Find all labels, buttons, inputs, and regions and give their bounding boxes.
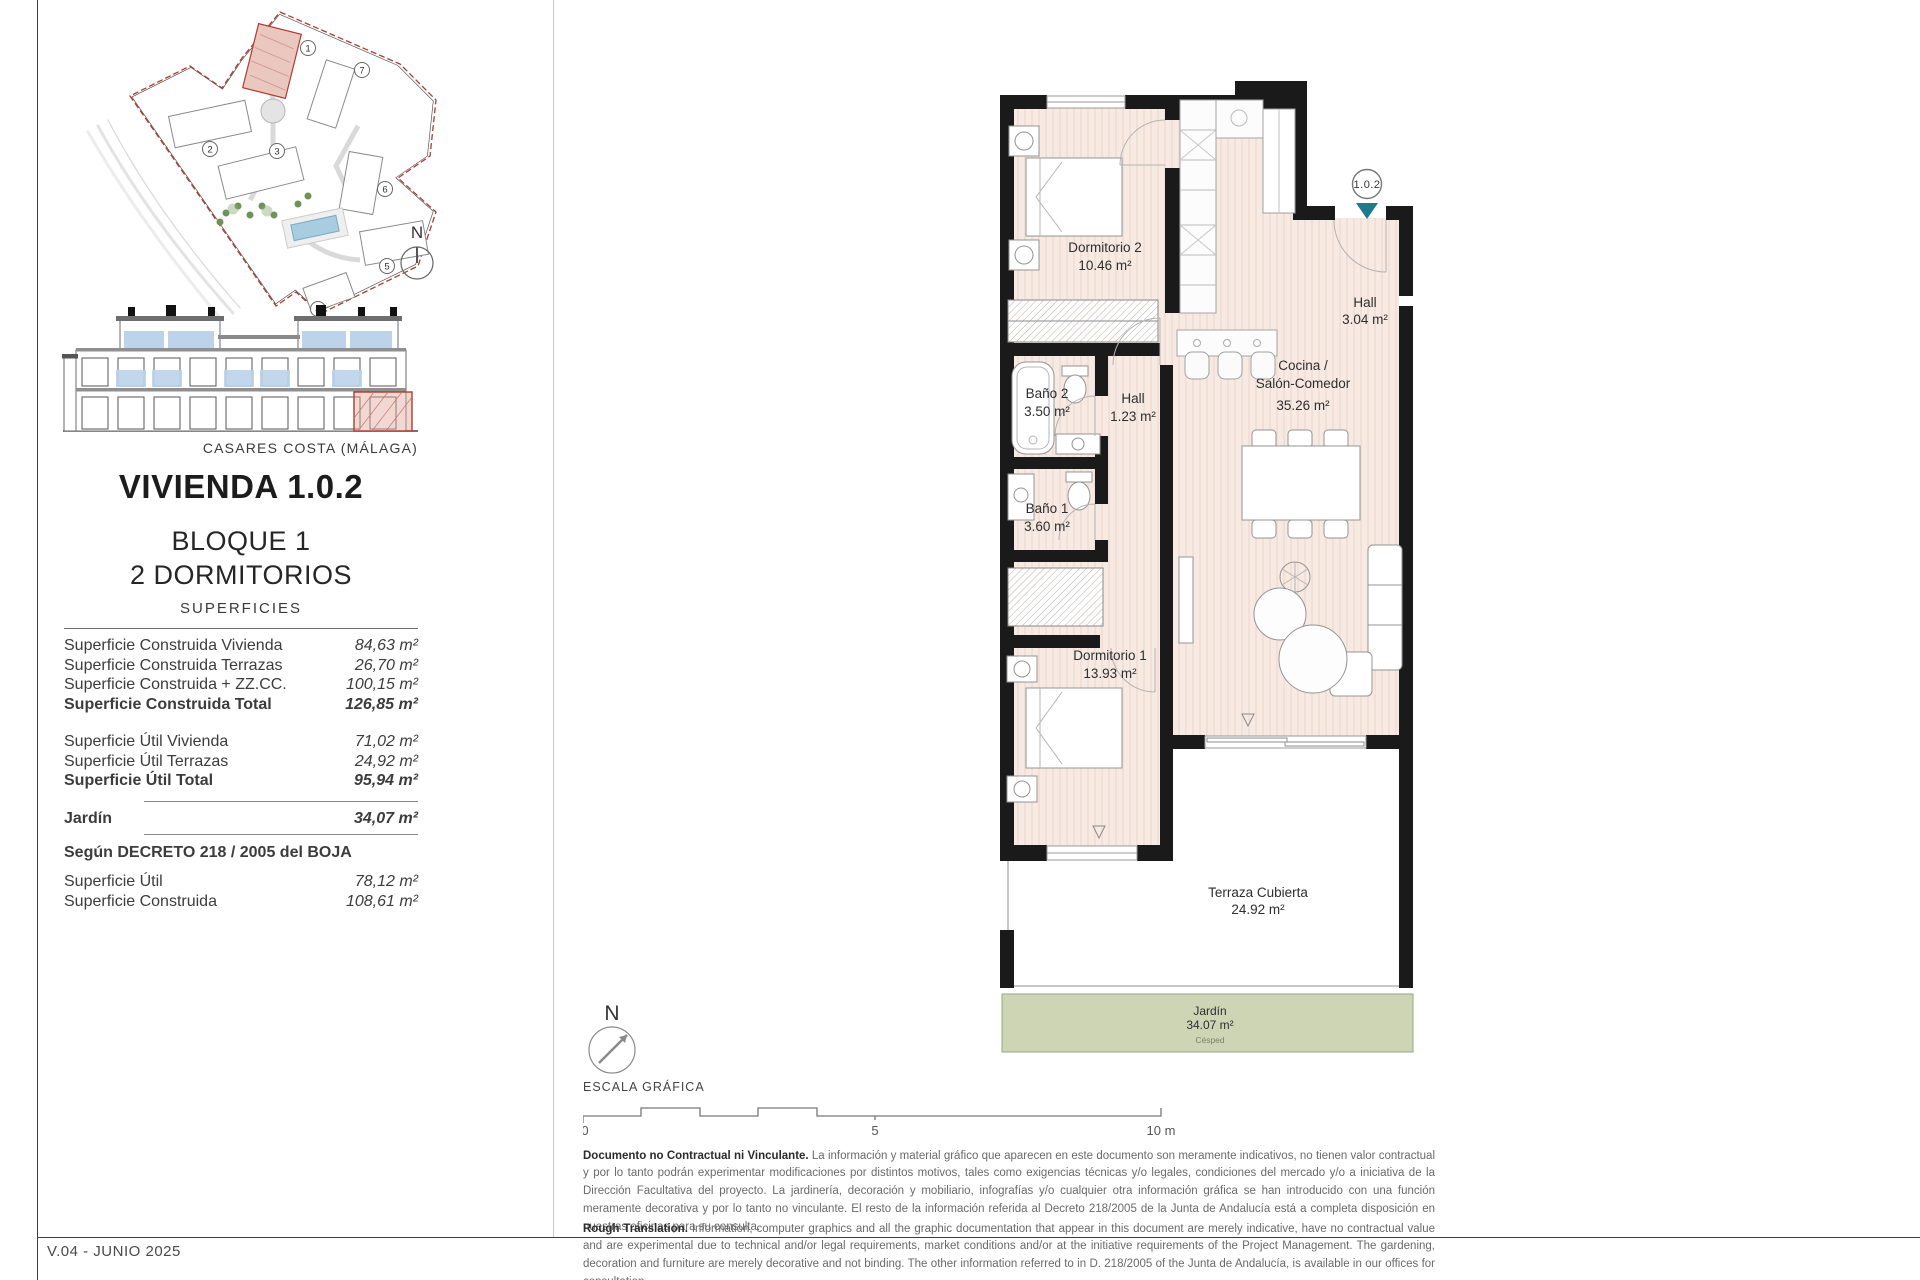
svg-text:35.26 m²: 35.26 m² (1276, 398, 1330, 413)
bedrooms-label: 2 DORMITORIOS (64, 558, 418, 592)
disclaimer-spanish-lead: Documento no Contractual ni Vinculante. (583, 1150, 809, 1162)
unit-marker: 1.0.2 (1353, 170, 1382, 220)
table-row-total: Superficie Construida Total 126,85 m² (64, 695, 418, 715)
scale-tick-10: 10 m (1147, 1123, 1176, 1138)
table-row: Superficie Útil Terrazas 24,92 m² (64, 752, 418, 772)
svg-text:1: 1 (305, 43, 310, 54)
table-rule-top (64, 628, 418, 629)
svg-text:Baño 1: Baño 1 (1026, 501, 1069, 516)
svg-text:Césped: Césped (1195, 1035, 1225, 1045)
svg-text:3.60 m²: 3.60 m² (1024, 519, 1070, 534)
svg-text:Dormitorio 2: Dormitorio 2 (1068, 240, 1142, 255)
north-compass-site: N (395, 222, 439, 284)
svg-text:3.50 m²: 3.50 m² (1024, 404, 1070, 419)
table-row-jardin: Jardín 34,07 m² (64, 809, 418, 829)
scale-title: ESCALA GRÁFICA (583, 1080, 705, 1094)
svg-text:Salón-Comedor: Salón-Comedor (1256, 376, 1351, 391)
table-row-total: Superficie Útil Total 95,94 m² (64, 771, 418, 791)
table-row: Superficie Construida Terrazas 26,70 m² (64, 656, 418, 676)
north-compass-plan: N (585, 998, 655, 1083)
plan-sheet: V.04 - JUNIO 2025 (0, 0, 1920, 1280)
svg-text:3.04 m²: 3.04 m² (1342, 312, 1388, 327)
jardin-rule-bottom (144, 834, 418, 835)
jardin-rule-top (144, 801, 418, 802)
scale-bar: 0 5 10 m (583, 1096, 1183, 1138)
block-label: BLOQUE 1 (64, 524, 418, 558)
unit-marker-label: 1.0.2 (1354, 179, 1381, 191)
scale-tick-5: 5 (871, 1123, 878, 1138)
svg-text:Jardín: Jardín (1193, 1004, 1226, 1018)
superficies-heading: SUPERFICIES (64, 600, 418, 617)
floor-plan: 1.0.2 Dormitorio 2 10.46 m² Hall 3.04 m²… (990, 58, 1430, 1063)
svg-text:6: 6 (382, 184, 387, 195)
svg-text:10.46 m²: 10.46 m² (1078, 258, 1132, 273)
table-row: Superficie Construida + ZZ.CC. 100,15 m² (64, 675, 418, 695)
site-pool (282, 208, 348, 248)
superficies-table: Superficie Construida Vivienda 84,63 m² … (64, 628, 418, 911)
table-row: Superficie Construida 108,61 m² (64, 892, 418, 912)
north-label: N (411, 223, 423, 242)
svg-text:Baño 2: Baño 2 (1026, 386, 1069, 401)
svg-text:Dormitorio 1: Dormitorio 1 (1073, 648, 1147, 663)
svg-text:Hall: Hall (1353, 295, 1376, 310)
location-caption: CASARES COSTA (MÁLAGA) (64, 440, 418, 456)
decreto-heading: Según DECRETO 218 / 2005 del BOJA (64, 842, 418, 866)
north-label: N (604, 1002, 619, 1025)
table-row: Superficie Útil 78,12 m² (64, 872, 418, 892)
svg-text:5: 5 (384, 261, 389, 272)
site-plan: 1 2 3 4 5 6 7 (68, 8, 443, 320)
svg-text:2: 2 (207, 144, 212, 155)
svg-text:24.92 m²: 24.92 m² (1231, 902, 1285, 917)
page-title: VIVIENDA 1.0.2 (64, 468, 418, 506)
table-row: Superficie Construida Vivienda 84,63 m² (64, 636, 418, 656)
column-divider (553, 0, 554, 1238)
svg-text:3: 3 (274, 146, 279, 157)
table-row: Superficie Útil Vivienda 71,02 m² (64, 732, 418, 752)
disclaimer-english: Rough Translation. Information, computer… (583, 1221, 1435, 1280)
scale-bar-line (583, 1108, 1161, 1123)
scale-tick-0: 0 (583, 1123, 589, 1138)
page-left-border (37, 0, 38, 1280)
terrace-outline (1008, 852, 1399, 986)
disclaimer-english-lead: Rough Translation. (583, 1223, 688, 1235)
entrance-arrow-icon (1356, 203, 1378, 219)
svg-text:7: 7 (359, 65, 364, 76)
svg-text:13.93 m²: 13.93 m² (1083, 666, 1137, 681)
svg-text:Terraza Cubierta: Terraza Cubierta (1208, 885, 1308, 900)
svg-text:1.23 m²: 1.23 m² (1110, 409, 1156, 424)
version-footer: V.04 - JUNIO 2025 (47, 1243, 181, 1260)
svg-text:Cocina /: Cocina / (1278, 358, 1328, 373)
svg-text:Hall: Hall (1121, 391, 1144, 406)
site-building-1-highlight (243, 24, 302, 99)
svg-text:34.07 m²: 34.07 m² (1186, 1018, 1233, 1032)
elevation-unit-highlight (354, 392, 412, 431)
unit-subtitle: BLOQUE 1 2 DORMITORIOS (64, 524, 418, 592)
room-label-terraza: Terraza Cubierta 24.92 m² (1208, 885, 1308, 917)
building-elevation (58, 298, 423, 438)
